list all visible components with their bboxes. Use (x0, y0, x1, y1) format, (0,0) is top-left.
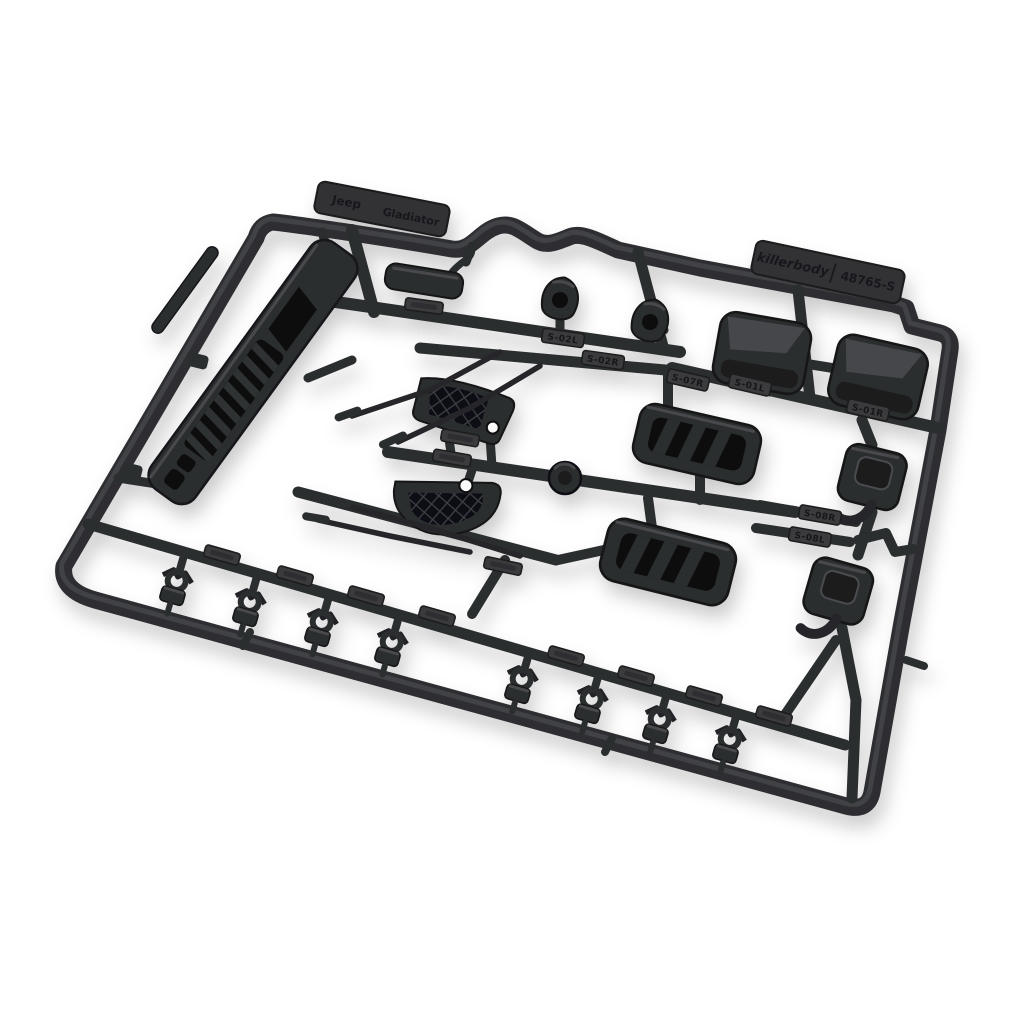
sprue-photo: Jeep Gladiator killerbody 48765-S S-02L … (0, 0, 1024, 1024)
frame-stub (906, 660, 924, 666)
through-hole (486, 421, 500, 435)
through-hole (459, 479, 473, 493)
injection-hub (549, 462, 581, 494)
